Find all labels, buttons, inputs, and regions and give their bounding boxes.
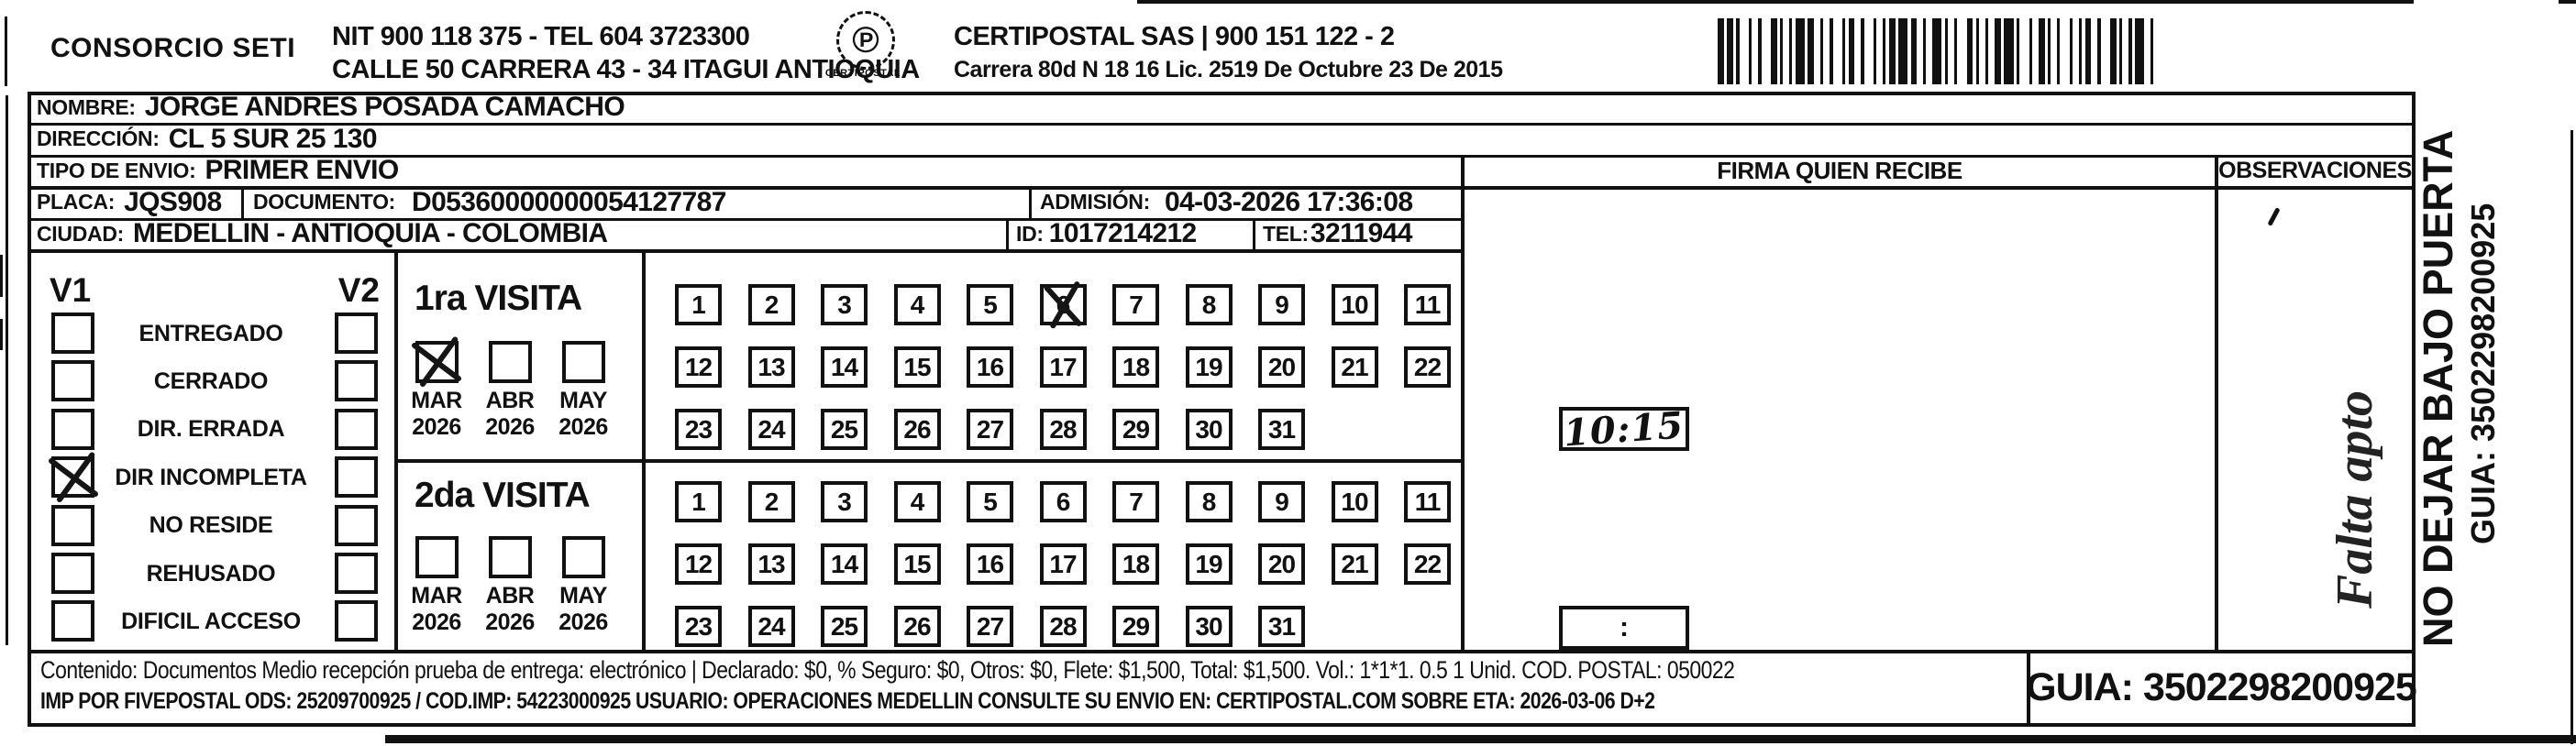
- day-number: 28: [1049, 415, 1076, 444]
- day-number: 16: [977, 353, 1003, 382]
- barcode-bar: [1854, 18, 1861, 84]
- scan-artifact-left-dash: [0, 319, 3, 350]
- month-year: 2026: [548, 609, 618, 636]
- day-number: 1: [691, 488, 705, 517]
- barcode-bar: [2051, 18, 2057, 84]
- side-note-guia: GUIA: 3502298200925: [2464, 181, 2503, 544]
- barcode-bar: [2019, 18, 2029, 84]
- barcode-bar: [2085, 18, 2092, 84]
- header-nit-line: NIT 900 118 375 - TEL 604 3723300: [332, 22, 749, 52]
- barcode-bar: [1995, 18, 2001, 84]
- barcode-bar: [1740, 18, 1749, 84]
- v2-checkbox: [335, 505, 378, 546]
- id-value: 1017214212: [1049, 218, 1197, 249]
- id-label: ID:: [1016, 222, 1044, 247]
- barcode-bar: [2073, 18, 2079, 84]
- day-cell: 27: [967, 606, 1013, 647]
- day-grid: 1 2 3 4: [642, 463, 1461, 646]
- month-year: 2026: [402, 414, 471, 441]
- month-checkbox: [415, 536, 459, 578]
- scan-artifact-left-dash: [0, 255, 3, 297]
- barcode-bar: [1762, 18, 1771, 84]
- month-item: MAR 2026: [402, 341, 471, 441]
- day-number: 24: [757, 612, 784, 642]
- day-number: 22: [1414, 550, 1441, 579]
- month-checkbox: [562, 341, 605, 383]
- day-cell: 29: [1112, 606, 1159, 647]
- barcode-bar: [1988, 18, 1995, 84]
- status-row: DIR INCOMPLETA: [28, 454, 394, 501]
- scan-artifact-bottom-line: [385, 735, 2576, 743]
- barcode-bar: [1917, 18, 1923, 84]
- day-number: 5: [983, 291, 997, 320]
- day-number: 12: [685, 353, 712, 382]
- barcode-bar: [2091, 18, 2097, 84]
- month-checkbox: [489, 536, 532, 578]
- direccion-label: DIRECCIÓN:: [37, 126, 160, 151]
- day-cell: 18: [1112, 346, 1159, 388]
- barcode-bar: [1889, 18, 1896, 84]
- day-number: 2: [765, 488, 779, 517]
- tipo-envio-row: TIPO DE ENVIO: PRIMER ENVIO: [37, 155, 399, 186]
- month-label: MAY: [548, 388, 618, 414]
- barcode-bar: [1979, 18, 1985, 84]
- day-grid: 1 2 3 4: [642, 249, 1461, 459]
- day-cell: 2: [748, 481, 795, 522]
- documento-value: D05360000000054127787: [412, 187, 726, 218]
- month-checkboxes: MAR 2026 ABR 2026 MAY 2026: [402, 341, 618, 441]
- documento-row: DOCUMENTO: D05360000000054127787: [253, 186, 726, 218]
- direccion-value: CL 5 SUR 25 130: [169, 124, 377, 155]
- day-cell: 2: [748, 284, 795, 325]
- day-cell: 1: [675, 481, 722, 522]
- tipo-envio-label: TIPO DE ENVIO:: [37, 159, 195, 183]
- day-number: 12: [685, 550, 712, 579]
- ink-tick-mark: [2267, 207, 2280, 226]
- day-cell: 4: [894, 481, 941, 522]
- day-number: 27: [977, 415, 1003, 444]
- day-cell: 26: [894, 606, 941, 647]
- barcode-bar: [2110, 18, 2117, 84]
- day-number: 1: [691, 291, 705, 320]
- ciudad-value: MEDELLIN - ANTIOQUIA - COLOMBIA: [133, 218, 607, 249]
- day-cell: 31: [1258, 409, 1305, 450]
- placa-label: PLACA:: [37, 190, 115, 214]
- day-number: 7: [1129, 488, 1143, 517]
- admision-label: ADMISIÓN:: [1040, 190, 1150, 214]
- tipo-envio-value: PRIMER ENVIO: [205, 155, 398, 186]
- tel-row: TEL: 3211944: [1263, 218, 1412, 249]
- border-line: [241, 186, 244, 218]
- time-value: :: [1620, 612, 1629, 643]
- status-panel: V1 V2 ENTREGADO CERRADO DIR. ERRADA: [28, 249, 394, 650]
- border-line: [1006, 218, 1009, 249]
- day-number: 24: [757, 415, 784, 444]
- border-line: [1029, 186, 1032, 218]
- month-label: MAY: [548, 583, 618, 609]
- admision-value: 04-03-2026 17:36:08: [1165, 187, 1412, 218]
- day-cell: 13: [748, 346, 795, 388]
- day-number: 14: [831, 353, 857, 382]
- day-number: 4: [911, 291, 924, 320]
- v2-checkbox: [335, 409, 378, 450]
- scan-artifact-left-edge: [5, 16, 7, 86]
- day-number: 9: [1275, 291, 1288, 320]
- license-line: Carrera 80d N 18 16 Lic. 2519 De Octubre…: [954, 57, 1502, 83]
- barcode-bar: [1957, 18, 1966, 84]
- day-cell: 5: [967, 481, 1013, 522]
- day-number: 23: [685, 612, 712, 642]
- day-number: 27: [977, 612, 1003, 642]
- month-item: MAY 2026: [548, 536, 618, 636]
- tel-value: 3211944: [1310, 218, 1412, 249]
- v2-header: V2: [338, 271, 380, 310]
- day-cell: 13: [748, 543, 795, 585]
- day-cell: 24: [748, 409, 795, 450]
- day-number: 10: [1341, 291, 1367, 320]
- certipostal-logo-icon: ℗: [836, 11, 895, 70]
- barcode-bar: [2032, 18, 2039, 84]
- barcode-bar: [1967, 18, 1973, 84]
- day-cell: 31: [1258, 606, 1305, 647]
- barcode-bar: [1898, 18, 1907, 84]
- day-number: 15: [903, 550, 930, 579]
- day-cell: 15: [894, 346, 941, 388]
- day-cell: 3: [821, 481, 868, 522]
- status-row: ENTREGADO: [28, 310, 394, 357]
- day-cell: 21: [1332, 346, 1378, 388]
- day-cell: 7: [1112, 481, 1159, 522]
- day-cell: 20: [1258, 543, 1305, 585]
- day-number: 17: [1049, 353, 1076, 382]
- v1-header: V1: [50, 271, 91, 310]
- time-value: 10:15: [1563, 403, 1686, 455]
- barcode-bar: [1771, 18, 1777, 84]
- day-cell: 16: [967, 346, 1013, 388]
- month-checkbox: [489, 341, 532, 383]
- day-number: 25: [831, 415, 857, 444]
- day-cell: 4: [894, 284, 941, 325]
- barcode-bar: [1911, 18, 1918, 84]
- day-number: 9: [1275, 488, 1288, 517]
- day-number: 13: [757, 550, 784, 579]
- day-number: 5: [983, 488, 997, 517]
- day-number: 29: [1122, 612, 1149, 642]
- visit-block: 2da VISITA MAR 2026 ABR 2026: [394, 459, 1461, 646]
- day-cell: 30: [1186, 606, 1233, 647]
- day-number: 6: [1056, 291, 1070, 320]
- month-item: MAR 2026: [402, 536, 471, 636]
- day-cell: 12: [675, 346, 722, 388]
- month-year: 2026: [475, 609, 545, 636]
- scan-artifact-left-edge-2: [6, 95, 8, 645]
- day-number: 19: [1195, 353, 1222, 382]
- day-number: 8: [1202, 488, 1216, 517]
- day-cell: 5: [967, 284, 1013, 325]
- barcode-bar: [1727, 18, 1733, 84]
- border-line: [1253, 218, 1255, 249]
- month-item: ABR 2026: [475, 341, 545, 441]
- day-cell: 21: [1332, 543, 1378, 585]
- day-number: 13: [757, 353, 784, 382]
- month-checkbox: [562, 536, 605, 578]
- barcode-bar: [2039, 18, 2045, 84]
- day-cell: 25: [821, 409, 868, 450]
- barcode-bar: [1948, 18, 1954, 84]
- barcode-bar: [2135, 18, 2144, 84]
- day-cell: 3: [821, 284, 868, 325]
- footer-imp-line: IMP POR FIVEPOSTAL ODS: 25209700925 / CO…: [40, 688, 1654, 715]
- status-row: NO RESIDE: [28, 502, 394, 550]
- day-cell: 14: [821, 346, 868, 388]
- company-name: CONSORCIO SETI: [50, 33, 295, 64]
- day-cells: 1 2 3 4: [675, 481, 1454, 647]
- barcode-bar: [2101, 18, 2110, 84]
- barcode: [1718, 18, 2228, 84]
- day-number: 11: [1415, 291, 1441, 320]
- border-line: [1461, 155, 1465, 653]
- barcode-bar: [1833, 18, 1842, 84]
- day-cell: 1: [675, 284, 722, 325]
- day-number: 19: [1195, 550, 1222, 579]
- barcode-bar: [2153, 18, 2160, 84]
- barcode-bar: [2004, 18, 2013, 84]
- month-year: 2026: [475, 414, 545, 441]
- logo-caption: CERTIPOSTAL: [813, 68, 913, 79]
- day-cell: 10: [1332, 284, 1378, 325]
- month-item: ABR 2026: [475, 536, 545, 636]
- day-cell: 8: [1186, 284, 1233, 325]
- barcode-bar: [2122, 18, 2128, 84]
- status-row: DIFICIL ACCESO: [28, 598, 394, 645]
- day-number: 18: [1122, 550, 1149, 579]
- day-cell: 12: [675, 543, 722, 585]
- status-row: CERRADO: [28, 357, 394, 405]
- delivery-form-scan: CONSORCIO SETI NIT 900 118 375 - TEL 604…: [0, 0, 2576, 746]
- day-number: 22: [1414, 353, 1441, 382]
- placa-row: PLACA: JQS908: [37, 186, 222, 218]
- day-cell: 11: [1404, 284, 1451, 325]
- v2-checkbox: [335, 313, 378, 354]
- nombre-label: NOMBRE:: [37, 95, 136, 120]
- day-number: 28: [1049, 612, 1076, 642]
- visit-title: 1ra VISITA: [415, 279, 581, 319]
- day-number: 20: [1268, 550, 1295, 579]
- month-label: MAR: [402, 583, 471, 609]
- nombre-value: JORGE ANDRES POSADA CAMACHO: [145, 92, 625, 123]
- day-cell: 14: [821, 543, 868, 585]
- time-box: 10:15: [1559, 407, 1689, 451]
- day-number: 26: [903, 415, 930, 444]
- day-number: 17: [1049, 550, 1076, 579]
- nombre-row: NOMBRE: JORGE ANDRES POSADA CAMACHO: [37, 92, 625, 123]
- barcode-bar: [1849, 18, 1855, 84]
- day-cell: 19: [1186, 346, 1233, 388]
- barcode-bar: [1752, 18, 1758, 84]
- barcode-bar: [1926, 18, 1932, 84]
- month-label: ABR: [475, 388, 545, 414]
- day-number: 31: [1268, 612, 1295, 642]
- day-cell: 17: [1040, 543, 1087, 585]
- day-cell: 10: [1332, 481, 1378, 522]
- day-cell: 7: [1112, 284, 1159, 325]
- barcode-bar: [1876, 18, 1883, 84]
- day-cell: 6: [1040, 481, 1087, 522]
- month-label: ABR: [475, 583, 545, 609]
- v2-checkbox: [335, 360, 378, 401]
- scan-artifact-right-edge: [2570, 130, 2573, 744]
- day-number: 7: [1129, 291, 1143, 320]
- day-cell: 17: [1040, 346, 1087, 388]
- day-cell: 9: [1258, 481, 1305, 522]
- day-number: 14: [831, 550, 857, 579]
- barcode-bar: [1814, 18, 1820, 84]
- day-cell: 16: [967, 543, 1013, 585]
- day-number: 25: [831, 612, 857, 642]
- guia-number: GUIA: 3502298200925: [2030, 650, 2412, 726]
- logo-p-glyph: ℗: [852, 20, 879, 61]
- direccion-row: DIRECCIÓN: CL 5 SUR 25 130: [37, 123, 377, 155]
- day-number: 30: [1195, 612, 1222, 642]
- day-number: 30: [1195, 415, 1222, 444]
- day-cell: 18: [1112, 543, 1159, 585]
- visit-block: 1ra VISITA MAR 2026 ABR 2026: [394, 249, 1461, 459]
- day-cell: 8: [1186, 481, 1233, 522]
- barcode-bar: [1783, 18, 1789, 84]
- operator-line: CERTIPOSTAL SAS | 900 151 122 - 2: [954, 22, 1395, 52]
- scan-artifact-top-line: [1137, 0, 2414, 4]
- footer-content-line: Contenido: Documentos Medio recepción pr…: [40, 656, 1734, 685]
- status-row: DIR. ERRADA: [28, 406, 394, 454]
- day-cell: 9: [1258, 284, 1305, 325]
- barcode-bar: [1864, 18, 1874, 84]
- day-number: 23: [685, 415, 712, 444]
- day-number: 16: [977, 550, 1003, 579]
- day-number: 31: [1268, 415, 1295, 444]
- admision-row: ADMISIÓN: 04-03-2026 17:36:08: [1040, 186, 1412, 218]
- month-year: 2026: [402, 609, 471, 636]
- day-cell: 26: [894, 409, 941, 450]
- day-number: 10: [1341, 488, 1367, 517]
- handwritten-note: Falta apto: [2326, 273, 2384, 609]
- day-number: 4: [911, 488, 924, 517]
- barcode-bar: [1808, 18, 1814, 84]
- day-cell: 30: [1186, 409, 1233, 450]
- documento-label: DOCUMENTO:: [253, 190, 395, 214]
- status-rows: ENTREGADO CERRADO DIR. ERRADA: [28, 310, 394, 646]
- day-number: 6: [1056, 488, 1070, 517]
- barcode-bar: [2060, 18, 2069, 84]
- month-checkbox: [415, 341, 459, 383]
- day-cell: 6: [1040, 284, 1087, 325]
- day-number: 3: [837, 291, 851, 320]
- observaciones-header: OBSERVACIONES: [2218, 155, 2412, 186]
- v2-checkbox: [335, 456, 378, 498]
- day-number: 3: [837, 488, 851, 517]
- day-cell: 19: [1186, 543, 1233, 585]
- month-year: 2026: [548, 414, 618, 441]
- barcode-bar: [1932, 18, 1941, 84]
- ciudad-label: CIUDAD:: [37, 222, 124, 247]
- day-number: 11: [1415, 488, 1441, 517]
- day-cell: 23: [675, 606, 722, 647]
- day-number: 8: [1202, 291, 1216, 320]
- border-line: [2215, 155, 2218, 653]
- day-cell: 24: [748, 606, 795, 647]
- side-note-no-dejar: NO DEJAR BAJO PUERTA: [2415, 117, 2462, 647]
- day-cell: 28: [1040, 606, 1087, 647]
- day-cell: 29: [1112, 409, 1159, 450]
- month-label: MAR: [402, 388, 471, 414]
- month-item: MAY 2026: [548, 341, 618, 441]
- day-cell: 23: [675, 409, 722, 450]
- day-cell: 11: [1404, 481, 1451, 522]
- day-cell: 27: [967, 409, 1013, 450]
- v2-checkbox: [335, 600, 378, 642]
- barcode-bar: [1796, 18, 1805, 84]
- visit-title: 2da VISITA: [415, 476, 590, 516]
- day-number: 21: [1341, 353, 1367, 382]
- day-number: 26: [903, 612, 930, 642]
- day-number: 21: [1341, 550, 1367, 579]
- time-box: :: [1559, 606, 1689, 650]
- day-number: 2: [765, 291, 779, 320]
- day-number: 18: [1122, 353, 1149, 382]
- placa-value: JQS908: [124, 187, 221, 218]
- border-line: [28, 123, 2416, 126]
- scan-artifact-top-dash: [2559, 0, 2576, 4]
- day-number: 15: [903, 353, 930, 382]
- month-checkboxes: MAR 2026 ABR 2026 MAY 2026: [402, 536, 618, 636]
- day-cell: 22: [1404, 543, 1451, 585]
- visits: 1ra VISITA MAR 2026 ABR 2026: [394, 249, 1461, 650]
- ciudad-row: CIUDAD: MEDELLIN - ANTIOQUIA - COLOMBIA: [37, 218, 607, 249]
- barcode-bar: [1718, 18, 1724, 84]
- day-cell: 15: [894, 543, 941, 585]
- id-row: ID: 1017214212: [1016, 218, 1197, 249]
- day-cell: 28: [1040, 409, 1087, 450]
- day-number: 29: [1122, 415, 1149, 444]
- day-cell: 20: [1258, 346, 1305, 388]
- day-number: 20: [1268, 353, 1295, 382]
- status-row: REHUSADO: [28, 550, 394, 598]
- day-cell: 22: [1404, 346, 1451, 388]
- day-cell: 25: [821, 606, 868, 647]
- barcode-bar: [2144, 18, 2150, 84]
- firma-header: FIRMA QUIEN RECIBE: [1465, 155, 2215, 186]
- day-cells: 1 2 3 4: [675, 284, 1454, 450]
- v2-checkbox: [335, 553, 378, 594]
- barcode-bar: [1823, 18, 1830, 84]
- tel-label: TEL:: [1263, 222, 1309, 247]
